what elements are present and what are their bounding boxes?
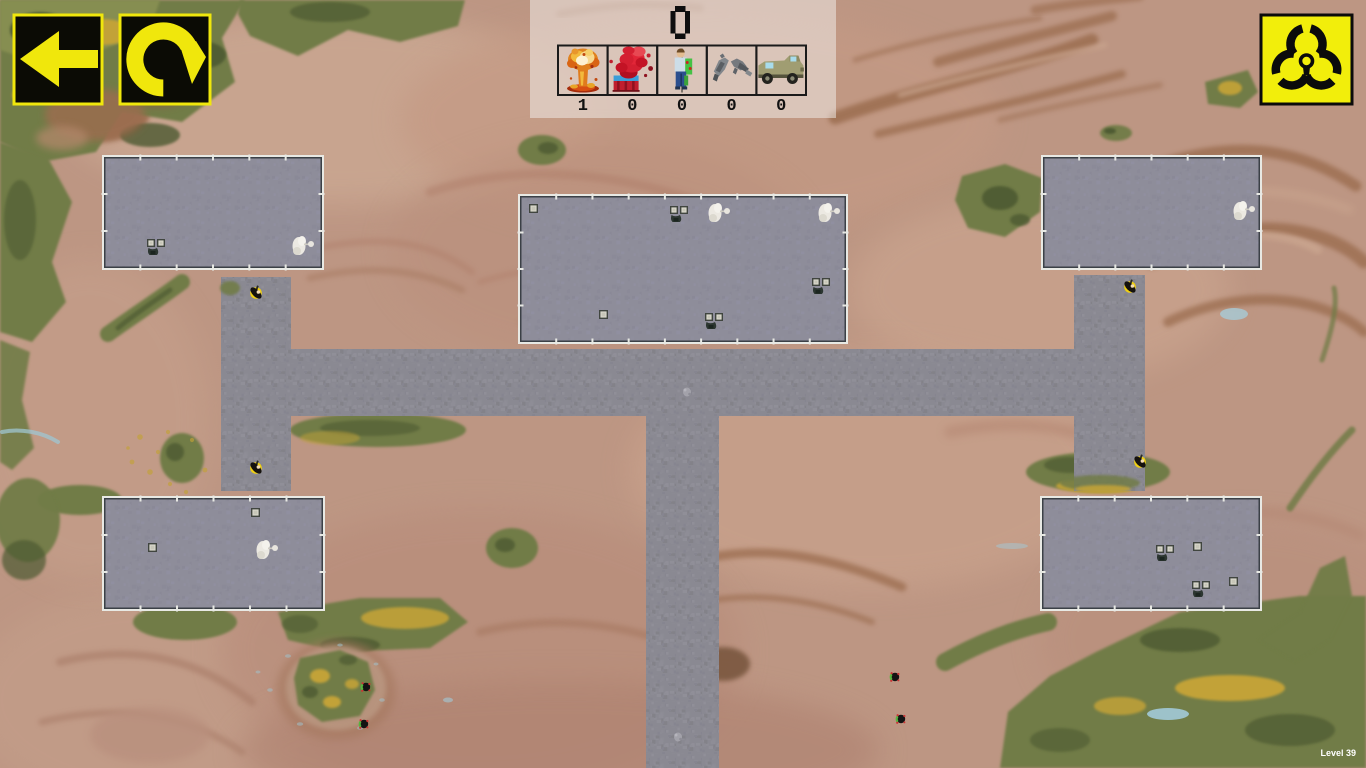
svg-text:0: 0 — [627, 97, 637, 116]
svg-text:Level 39: Level 39 — [1320, 748, 1356, 758]
svg-text:1: 1 — [578, 97, 588, 116]
svg-text:0: 0 — [726, 97, 736, 116]
svg-text:0: 0 — [776, 97, 786, 116]
svg-text:0: 0 — [677, 97, 687, 116]
